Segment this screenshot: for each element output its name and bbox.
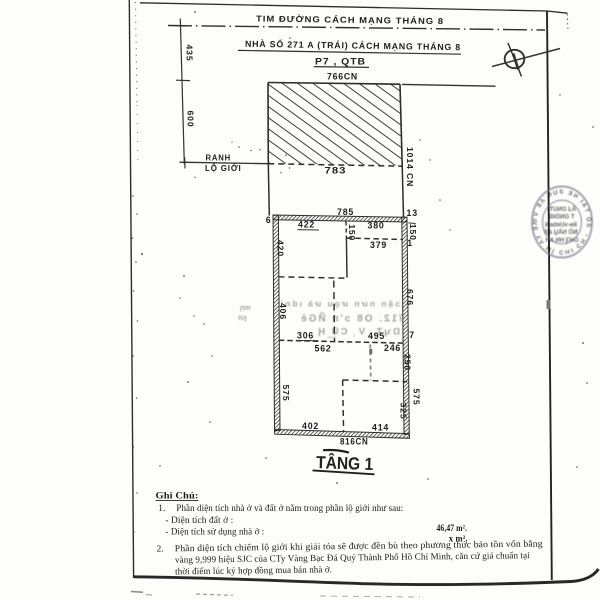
svg-text:306: 306	[297, 331, 314, 341]
svg-text:Ghi Chú:: Ghi Chú:	[156, 491, 199, 501]
svg-text:ITUИG ĿẲ: ITUИG ĿẲ	[548, 206, 577, 213]
svg-text:LỘ GIỚI: LỘ GIỚI	[205, 162, 242, 173]
svg-text:150: 150	[347, 224, 357, 241]
svg-text:402: 402	[302, 421, 319, 431]
svg-text:766CN: 766CN	[327, 71, 358, 81]
svg-text:422: 422	[298, 220, 315, 230]
svg-text:676: 676	[405, 289, 415, 306]
svg-text:325: 325	[399, 403, 409, 420]
svg-text:1: 1	[407, 238, 413, 248]
svg-text:380: 380	[368, 221, 385, 231]
svg-text:816CN: 816CN	[340, 437, 369, 447]
svg-text:575: 575	[281, 385, 291, 402]
svg-text:1.: 1.	[158, 504, 165, 514]
svg-text:250: 250	[403, 354, 413, 371]
svg-text:thời điểm lúc ký hợp đồng mua: thời điểm lúc ký hợp đồng mua bán nhà ở.	[175, 564, 332, 577]
svg-text:46,47 m².: 46,47 m².	[437, 524, 468, 534]
svg-text:1014 CN: 1014 CN	[405, 147, 415, 187]
svg-text:435: 435	[185, 44, 195, 61]
svg-text:ͶadяUv-ий: ͶadяUv-ий	[545, 222, 577, 229]
svg-text:ɔận nưn ưọu ưà ıdnʼ: ɔận nưn ưọu ưà ıdnʼ	[279, 299, 400, 309]
svg-text:- Diện tích đất ở :: - Diện tích đất ở :	[165, 515, 233, 526]
svg-text:ĐΙÒИG T: ĐΙÒИG T	[550, 213, 575, 221]
svg-text:13: 13	[407, 208, 418, 218]
svg-text:ҺA ИH ƑHO: ҺA ИH ƑHO	[546, 238, 579, 244]
svg-text:Phần diện tích nhà ở và đất ở: Phần diện tích nhà ở và đất ở nằm trong …	[176, 503, 403, 514]
svg-text:420: 420	[276, 240, 286, 257]
svg-text:Đá ЏẤИ ỐͶ: Đá ЏẤИ ỐͶ	[544, 229, 578, 236]
svg-text:P7 , QTB: P7 , QTB	[315, 57, 366, 67]
svg-text:ĩ12. O8 ɔ'n ЙGè: ĩ12. O8 ɔ'n ЙGè	[299, 312, 403, 325]
svg-text:ꞃm: ꞃm	[240, 305, 251, 312]
svg-text:7: 7	[409, 330, 415, 340]
svg-text:2.: 2.	[157, 544, 164, 554]
svg-text:575: 575	[412, 389, 422, 406]
svg-text:414: 414	[372, 422, 389, 432]
svg-text:ŊʮT ̗ V ̖ CŪ͟ Ӊ: ŊʮT ̗ V ̖ CŪ͟ Ӊ	[316, 327, 400, 338]
svg-text:562: 562	[315, 343, 332, 353]
svg-text:379: 379	[370, 240, 387, 250]
svg-text:783: 783	[325, 166, 347, 176]
svg-text:246: 246	[384, 343, 401, 353]
svg-text:6: 6	[266, 215, 272, 225]
svg-text:ǹԓ: ǹԓ	[238, 315, 247, 322]
svg-text:785: 785	[337, 207, 354, 217]
svg-text:600: 600	[186, 110, 196, 127]
svg-text:- Diện tích sử dụng nhà ở :: - Diện tích sử dụng nhà ở :	[165, 528, 264, 538]
svg-text:RANH: RANH	[206, 153, 232, 163]
